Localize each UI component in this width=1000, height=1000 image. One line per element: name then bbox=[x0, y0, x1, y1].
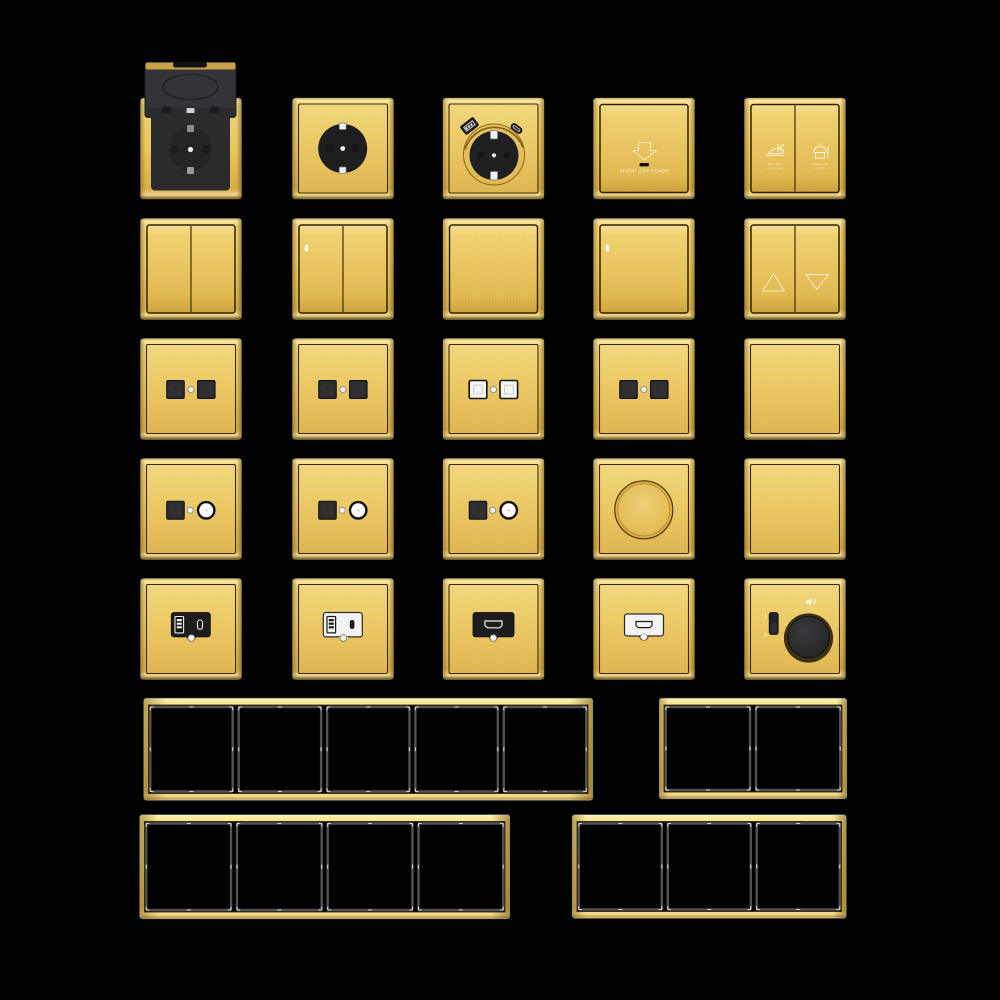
svg-text:0: 0 bbox=[764, 633, 767, 639]
svg-text:INSERT FOR POWER: INSERT FOR POWER bbox=[619, 168, 669, 173]
svg-text:1: 1 bbox=[764, 614, 767, 620]
svg-text:ROOM: ROOM bbox=[815, 166, 826, 170]
svg-text:DISTURB: DISTURB bbox=[767, 166, 783, 170]
